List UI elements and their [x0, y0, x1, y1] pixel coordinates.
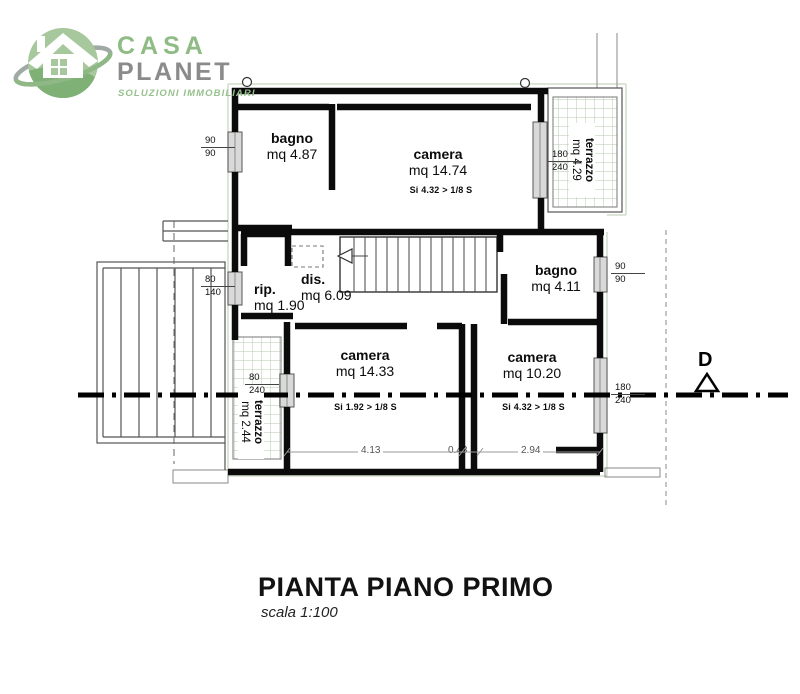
opening-height: 240	[548, 162, 582, 173]
room-name: camera	[378, 146, 498, 162]
section-marker-label: D	[698, 349, 712, 372]
room-name: camera	[472, 349, 592, 365]
dimension-chain	[284, 448, 603, 456]
logo-text-casa: CASA	[117, 32, 208, 61]
planet-house-icon	[10, 10, 118, 116]
floor-dim-right: 2.94	[518, 445, 543, 456]
section-arrow-triangle	[696, 374, 718, 391]
opening-dim-door-terrazzo-left: 80 240	[245, 373, 279, 397]
internal-staircase	[338, 237, 497, 292]
opening-width: 90	[611, 262, 645, 274]
opening-width: 90	[201, 136, 235, 148]
room-name: dis.	[301, 271, 361, 287]
opening-height: 90	[611, 274, 645, 285]
casa-planet-logo: CASA PLANET SOLUZIONI IMMOBILIARI	[10, 10, 260, 110]
opening-dim-window-bagno-left: 90 90	[201, 136, 235, 160]
room-label-dis: dis. mq 6.09	[301, 271, 361, 303]
logo-tagline: SOLUZIONI IMMOBILIARI	[118, 88, 256, 99]
room-label-camera-top: camera mq 14.74	[378, 146, 498, 178]
room-note-camera-top: Si 4.32 > 1/8 S	[396, 185, 486, 195]
room-area: mq 10.20	[472, 365, 592, 381]
drawing-scale: scala 1:100	[261, 604, 338, 621]
room-label-bagno-top: bagno mq 4.87	[240, 130, 344, 162]
opening-height: 140	[201, 287, 235, 298]
opening-dim-door-camera-right: 180 240	[611, 383, 645, 407]
room-note-camera-left: Si 1.92 > 1/8 S	[318, 402, 413, 412]
opening-width: 80	[201, 275, 235, 287]
room-area: mq 4.11	[506, 278, 606, 294]
room-name: terrazzo	[582, 123, 595, 197]
room-area: mq 14.33	[305, 363, 425, 379]
drawing-title: PIANTA PIANO PRIMO	[258, 572, 554, 603]
vent-circles	[243, 78, 530, 88]
opening-dim-window-bagno-right: 90 90	[611, 262, 645, 286]
external-staircase	[97, 221, 228, 470]
logo-text-planet: PLANET	[117, 58, 232, 87]
room-label-camera-left: camera mq 14.33	[305, 347, 425, 379]
opening-dim-door-terrazzo-top: 180 240	[548, 150, 582, 174]
room-name: bagno	[506, 262, 606, 278]
shaft-dashed-box	[292, 246, 323, 267]
opening-width: 80	[245, 373, 279, 385]
opening-height: 90	[201, 148, 235, 159]
room-label-bagno-right: bagno mq 4.11	[506, 262, 606, 294]
opening-height: 240	[611, 395, 645, 406]
opening-width: 180	[611, 383, 645, 395]
opening-width: 180	[548, 150, 582, 162]
room-area: mq 14.74	[378, 162, 498, 178]
opening-height: 240	[245, 385, 279, 396]
floor-dim-left: 4.13	[358, 445, 383, 456]
room-name: camera	[305, 347, 425, 363]
room-area: mq 4.87	[240, 146, 344, 162]
floorplan-page: 0.43	[0, 0, 800, 694]
room-area: mq 6.09	[301, 287, 361, 303]
room-name: bagno	[240, 130, 344, 146]
opening-dim-window-rip: 80 140	[201, 275, 235, 299]
room-label-camera-right: camera mq 10.20	[472, 349, 592, 381]
room-note-camera-right: Si 4.32 > 1/8 S	[486, 402, 581, 412]
